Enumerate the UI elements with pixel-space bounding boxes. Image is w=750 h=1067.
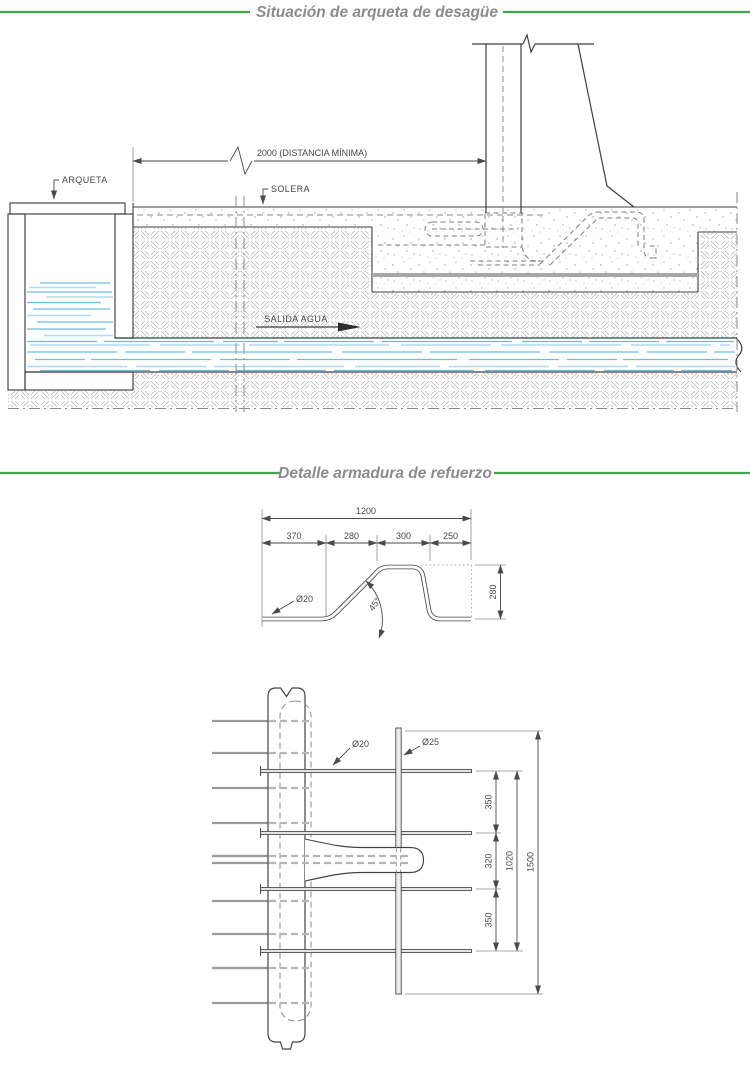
height-dimension: 280 (421, 565, 506, 619)
dim-350a-label: 350 (484, 794, 494, 809)
salida-agua-label: SALIDA AGUA (264, 314, 327, 324)
angle-45-label: 45° (367, 596, 383, 613)
arqueta-chamber (8, 203, 133, 390)
bar-extension-lines (262, 509, 471, 627)
chamber-right-wall (115, 214, 133, 338)
dim-300-label: 300 (396, 531, 411, 541)
outlet-pipe (25, 338, 742, 372)
chamber-water-lines (27, 283, 113, 336)
dim-350b-label: 350 (484, 912, 494, 927)
footing-slab (372, 207, 698, 292)
bar-diameter-leader (272, 601, 294, 614)
sloped-face (578, 44, 634, 207)
segment-dimensions: 370 280 300 250 (262, 531, 471, 543)
section2-title: Detalle armadura de refuerzo (278, 465, 492, 482)
chamber-floor (25, 372, 133, 390)
dim-1020-label: 1020 (505, 851, 515, 871)
bar-lap-tongue (305, 839, 424, 881)
plan-diameter-labels: Ø20 Ø25 (333, 737, 439, 765)
plan-d25-label: Ø25 (422, 737, 439, 747)
wall-structure (472, 35, 634, 213)
drawing-canvas: Situación de arqueta de desagüe (0, 0, 750, 1067)
dim-370-label: 370 (286, 531, 301, 541)
solera-slab (133, 207, 372, 227)
chamber-left-wall (8, 214, 25, 390)
bar-diameter-label: Ø20 (296, 594, 313, 604)
solera-label: SOLERA (271, 184, 310, 194)
pipe-water-lines (27, 342, 735, 371)
section1-title: Situación de arqueta de desagüe (256, 4, 498, 21)
plan-d20-label: Ø20 (352, 739, 369, 749)
section1-header: Situación de arqueta de desagüe (0, 4, 750, 21)
technical-drawing-sheet: Situación de arqueta de desagüe (0, 0, 750, 1067)
diagram-reinforcement-plan: Ø20 Ø25 350 320 350 1020 1500 (212, 688, 543, 1049)
diagram-bent-bar-detail: 1200 370 280 300 250 280 Ø20 (262, 506, 506, 638)
distancia-minima-label: 2000 (DISTANCIA MÍNIMA) (257, 148, 367, 158)
chamber-lid (10, 203, 125, 214)
wall-strip-plan (268, 688, 305, 1049)
diagram-arqueta-section: 2000 (DISTANCIA MÍNIMA) ARQUETA SOLERA S… (8, 35, 742, 412)
angle-45: 45° (366, 581, 383, 638)
dim-250-label: 250 (443, 531, 458, 541)
dim-280-label: 280 (344, 531, 359, 541)
bent-rebar (262, 567, 471, 619)
dim-1500-label: 1500 (526, 852, 536, 872)
existing-bars (212, 721, 269, 1003)
section2-header: Detalle armadura de refuerzo (0, 465, 750, 482)
dim-280v-label: 280 (488, 584, 498, 599)
dim-1200-label: 1200 (356, 506, 376, 516)
arqueta-label: ARQUETA (62, 175, 108, 185)
dim-320-label: 320 (484, 853, 494, 868)
